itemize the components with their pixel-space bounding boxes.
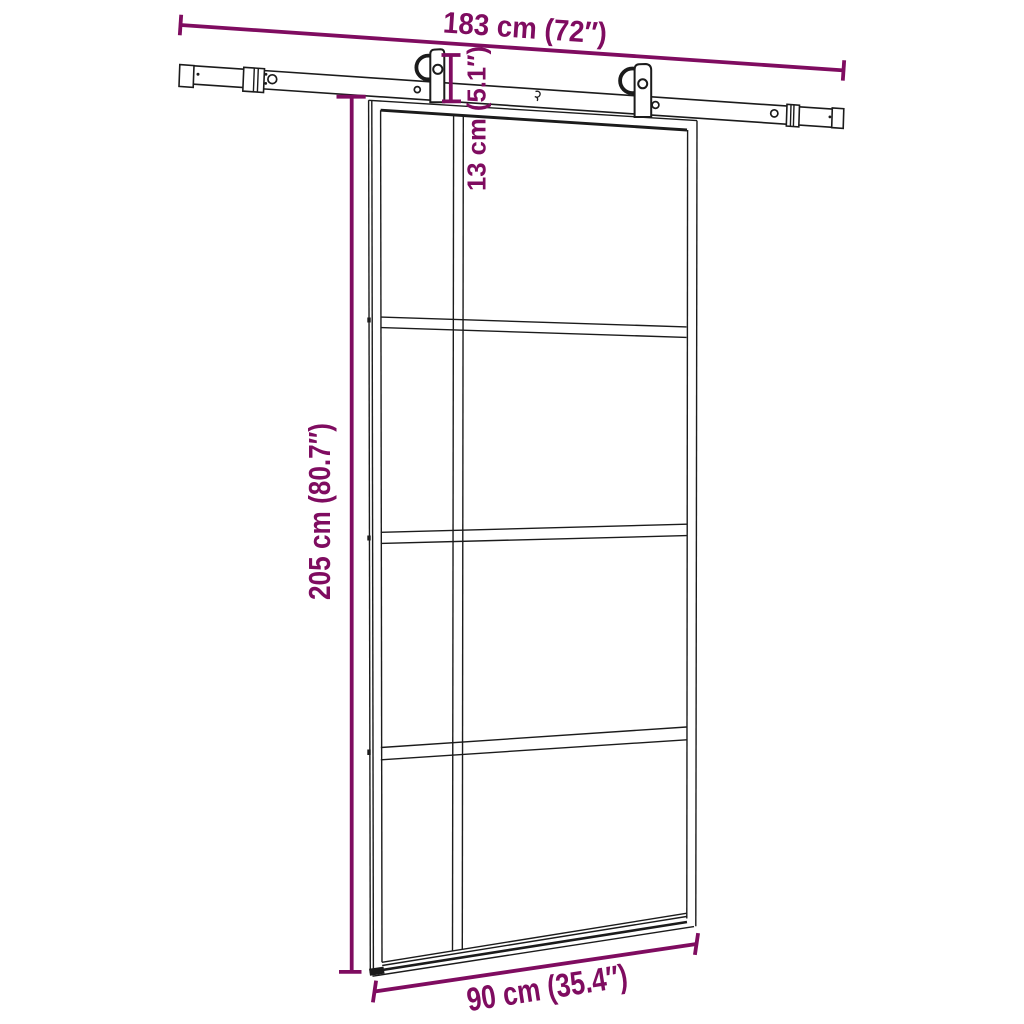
svg-text:13 cm (5.1″): 13 cm (5.1″) xyxy=(462,46,492,191)
svg-text:205 cm (80.7″): 205 cm (80.7″) xyxy=(302,423,337,600)
